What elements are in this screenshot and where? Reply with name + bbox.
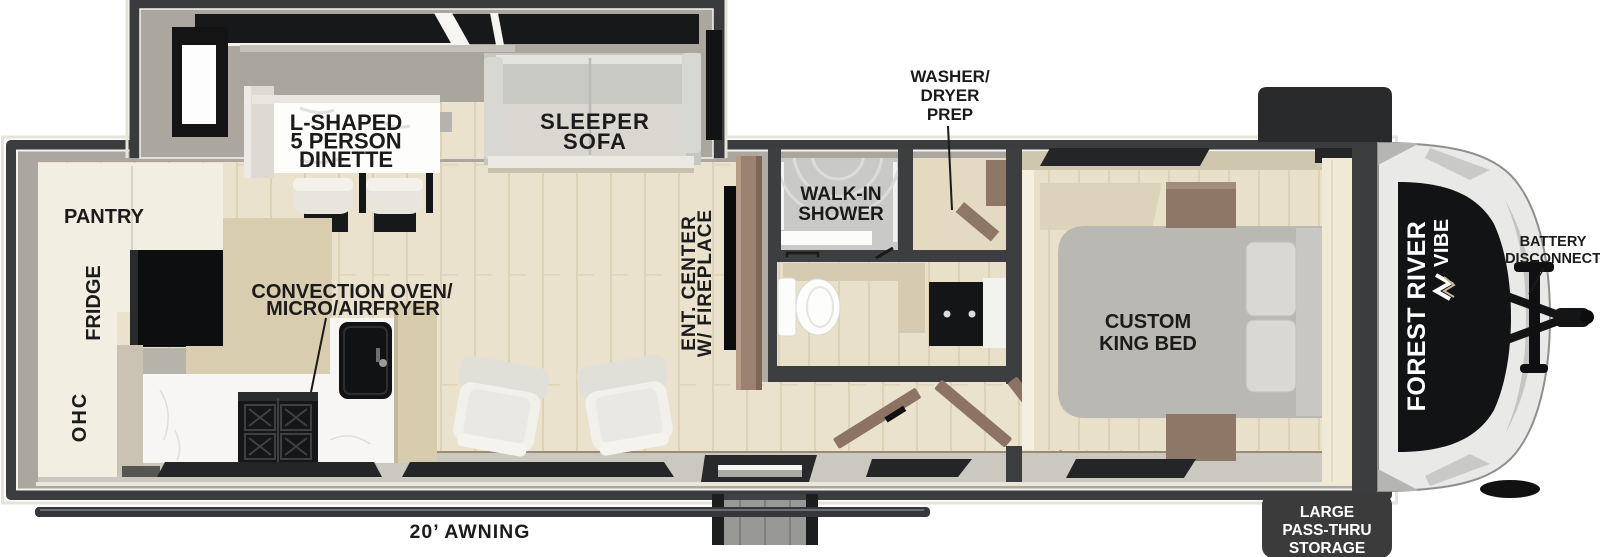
svg-text:PREP: PREP xyxy=(927,105,973,124)
svg-text:DISCONNECT: DISCONNECT xyxy=(1505,251,1600,267)
svg-text:DRYER: DRYER xyxy=(921,86,980,105)
svg-text:W/ FIREPLACE: W/ FIREPLACE xyxy=(695,209,716,357)
svg-text:KING BED: KING BED xyxy=(1099,333,1197,355)
svg-text:VIBE: VIBE xyxy=(1431,218,1453,267)
svg-text:PANTRY: PANTRY xyxy=(64,206,145,228)
svg-text:FOREST RIVER: FOREST RIVER xyxy=(1403,221,1431,412)
svg-text:CUSTOM: CUSTOM xyxy=(1105,311,1191,333)
svg-text:WASHER/: WASHER/ xyxy=(910,67,990,86)
svg-text:SOFA: SOFA xyxy=(563,129,627,154)
svg-text:OHC: OHC xyxy=(69,392,91,442)
svg-text:20’ AWNING: 20’ AWNING xyxy=(410,521,531,543)
svg-text:SHOWER: SHOWER xyxy=(798,204,884,225)
svg-text:LARGE: LARGE xyxy=(1300,504,1354,521)
svg-text:PASS-THRU: PASS-THRU xyxy=(1282,522,1371,539)
svg-text:STORAGE: STORAGE xyxy=(1289,540,1365,557)
svg-text:BATTERY: BATTERY xyxy=(1520,234,1587,250)
svg-text:MICRO/AIRFRYER: MICRO/AIRFRYER xyxy=(266,298,440,320)
svg-text:DINETTE: DINETTE xyxy=(299,147,393,172)
svg-text:WALK-IN: WALK-IN xyxy=(800,184,881,205)
svg-text:FRIDGE: FRIDGE xyxy=(83,265,105,341)
